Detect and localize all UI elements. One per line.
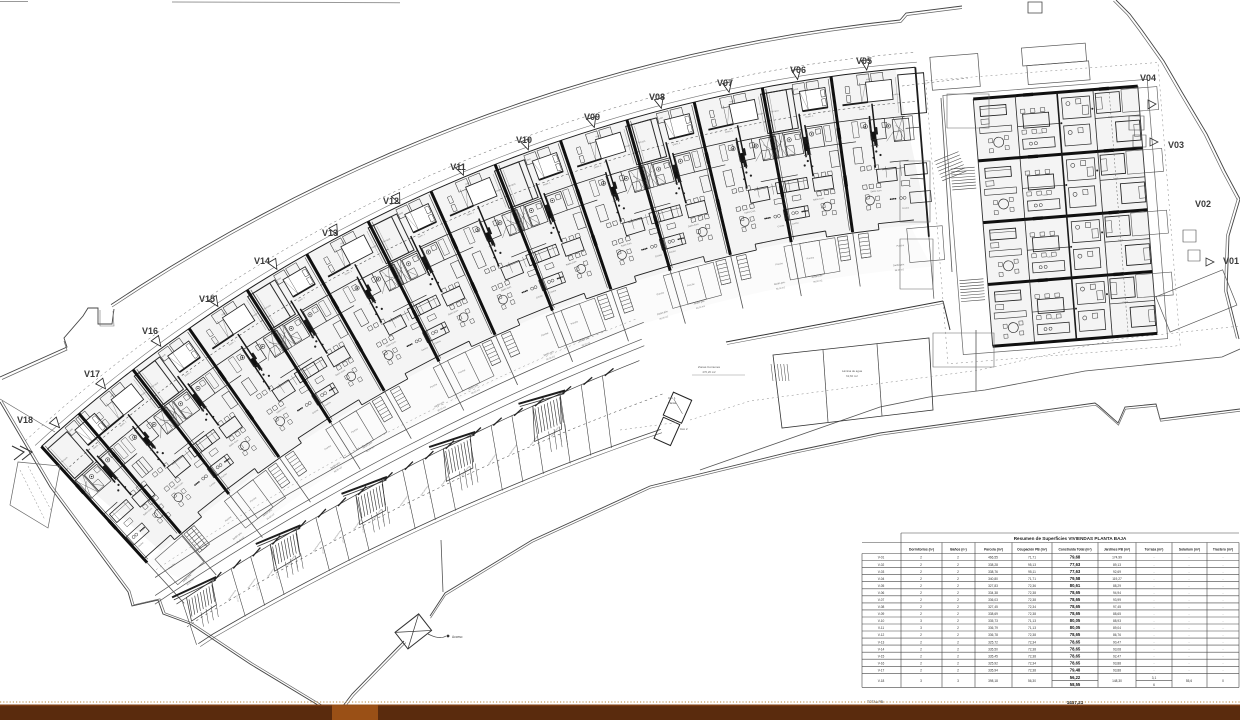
svg-text:Construida Total (m²): Construida Total (m²): [1058, 548, 1091, 552]
svg-text:V-14: V-14: [878, 647, 885, 651]
svg-text:-: -: [1153, 598, 1154, 602]
svg-text:-: -: [1222, 577, 1223, 581]
svg-text:97,45: 97,45: [1113, 605, 1121, 609]
svg-text:-: -: [1153, 647, 1154, 651]
svg-text:V15: V15: [199, 294, 215, 304]
svg-text:Dorm.: Dorm.: [1118, 239, 1125, 242]
svg-text:Lámina de agua: Lámina de agua: [842, 369, 863, 373]
svg-text:Planta: Planta: [668, 401, 676, 405]
svg-text:V07: V07: [717, 78, 733, 88]
svg-text:78,65: 78,65: [1070, 590, 1081, 595]
svg-text:72,38: 72,38: [1028, 591, 1036, 595]
svg-text:2: 2: [957, 654, 959, 658]
svg-text:327,45: 327,45: [988, 605, 998, 609]
svg-text:2: 2: [957, 556, 959, 560]
svg-text:V18: V18: [17, 415, 33, 425]
svg-text:3: 3: [920, 619, 922, 623]
svg-text:-: -: [1222, 563, 1223, 567]
svg-text:72,34: 72,34: [1028, 605, 1036, 609]
svg-text:V13: V13: [322, 228, 338, 238]
svg-text:-: -: [1153, 612, 1154, 616]
svg-text:2: 2: [920, 612, 922, 616]
svg-text:V-18: V-18: [878, 679, 885, 683]
svg-text:-: -: [1153, 570, 1154, 574]
svg-text:2: 2: [920, 654, 922, 658]
svg-text:79,58: 79,58: [1070, 576, 1081, 581]
svg-text:2: 2: [957, 570, 959, 574]
svg-text:V09: V09: [584, 112, 600, 122]
svg-text:78,65: 78,65: [1070, 611, 1081, 616]
svg-text:2: 2: [920, 556, 922, 560]
svg-text:Acceso: Acceso: [452, 635, 463, 639]
svg-text:72,38: 72,38: [1028, 612, 1036, 616]
svg-text:cont: cont: [866, 78, 871, 81]
svg-text:V-16: V-16: [878, 662, 885, 666]
svg-text:-: -: [1222, 640, 1223, 644]
svg-text:-: -: [1188, 626, 1189, 630]
svg-text:-: -: [1188, 654, 1189, 658]
svg-text:-: -: [1153, 669, 1154, 673]
svg-text:72,38: 72,38: [1028, 647, 1036, 651]
svg-text:-: -: [1222, 669, 1223, 673]
svg-text:-: -: [1188, 584, 1189, 588]
svg-text:55,6: 55,6: [1186, 679, 1192, 683]
svg-text:-: -: [1188, 577, 1189, 581]
svg-text:3: 3: [920, 626, 922, 630]
svg-text:72,38: 72,38: [1028, 669, 1036, 673]
svg-text:Resumen de Superficies VIVIEND: Resumen de Superficies VIVIENDAS PLANTA …: [1014, 536, 1127, 541]
svg-text:-: -: [1153, 662, 1154, 666]
svg-text:93,88: 93,88: [1113, 669, 1121, 673]
svg-text:71,13: 71,13: [1028, 626, 1036, 630]
svg-text:-: -: [1188, 669, 1189, 673]
svg-text:V-11: V-11: [878, 626, 885, 630]
svg-text:-: -: [1188, 598, 1189, 602]
svg-text:71,71: 71,71: [1028, 556, 1036, 560]
svg-text:77,63: 77,63: [1070, 562, 1081, 567]
svg-text:-: -: [1222, 626, 1223, 630]
svg-text:338,69: 338,69: [988, 612, 998, 616]
svg-text:-: -: [1153, 626, 1154, 630]
svg-text:80,61: 80,61: [1070, 583, 1081, 588]
svg-text:V-07: V-07: [878, 598, 885, 602]
svg-text:92,47: 92,47: [1113, 654, 1121, 658]
svg-text:Trastero (m²): Trastero (m²): [1213, 548, 1233, 552]
svg-text:V01: V01: [1223, 256, 1239, 266]
svg-text:TOTAL PB: TOTAL PB: [867, 700, 884, 704]
svg-text:-: -: [1153, 619, 1154, 623]
svg-text:78,65: 78,65: [1070, 661, 1081, 666]
svg-text:V-05: V-05: [878, 584, 885, 588]
svg-text:2: 2: [957, 626, 959, 630]
svg-text:-: -: [1222, 605, 1223, 609]
svg-text:-: -: [1153, 556, 1154, 560]
svg-text:Dorm.: Dorm.: [1123, 300, 1130, 303]
svg-text:89,04: 89,04: [1113, 626, 1121, 630]
svg-text:72,34: 72,34: [1028, 662, 1036, 666]
svg-text:Dorm.: Dorm.: [1108, 115, 1115, 118]
svg-text:327,83: 327,83: [988, 584, 998, 588]
svg-text:174,99: 174,99: [1112, 556, 1122, 560]
svg-text:2: 2: [957, 577, 959, 581]
svg-text:-: -: [1222, 633, 1223, 637]
svg-text:V16: V16: [142, 326, 158, 336]
svg-text:-: -: [1188, 556, 1189, 560]
svg-text:V-08: V-08: [878, 605, 885, 609]
svg-text:V-12: V-12: [878, 633, 885, 637]
svg-text:338,76: 338,76: [988, 570, 998, 574]
svg-text:Parcela (m²): Parcela (m²): [984, 548, 1003, 552]
svg-text:6: 6: [1153, 683, 1155, 687]
svg-text:79,48: 79,48: [1070, 668, 1081, 673]
svg-text:-: -: [1188, 563, 1189, 567]
svg-text:-: -: [1153, 633, 1154, 637]
svg-text:340,80: 340,80: [988, 577, 998, 581]
svg-text:325,72: 325,72: [988, 640, 998, 644]
svg-text:2: 2: [957, 612, 959, 616]
svg-text:72,38: 72,38: [1028, 654, 1036, 658]
svg-text:0: 0: [1222, 679, 1224, 683]
svg-text:-: -: [1153, 577, 1154, 581]
svg-text:71,71: 71,71: [1028, 577, 1036, 581]
svg-text:Inst. 1: Inst. 1: [668, 396, 676, 400]
svg-text:V12: V12: [383, 196, 399, 206]
svg-text:90,47: 90,47: [1113, 640, 1121, 644]
svg-text:72,34: 72,34: [1028, 640, 1036, 644]
svg-text:338,28: 338,28: [988, 563, 998, 567]
svg-text:V14: V14: [254, 256, 270, 266]
svg-text:-: -: [1222, 662, 1223, 666]
svg-text:2: 2: [920, 605, 922, 609]
svg-text:V11: V11: [450, 162, 466, 172]
svg-text:-: -: [1188, 612, 1189, 616]
svg-text:86,76: 86,76: [1113, 633, 1121, 637]
svg-text:94,94: 94,94: [1113, 591, 1121, 595]
svg-text:93,88: 93,88: [1113, 662, 1121, 666]
svg-text:335,73: 335,73: [988, 619, 998, 623]
svg-text:325,92: 325,92: [988, 662, 998, 666]
svg-text:77,63: 77,63: [1070, 569, 1081, 574]
svg-text:80,05: 80,05: [1070, 625, 1081, 630]
svg-text:-: -: [1188, 633, 1189, 637]
svg-text:V06: V06: [790, 65, 806, 75]
svg-text:-: -: [1153, 563, 1154, 567]
svg-text:-: -: [1222, 598, 1223, 602]
svg-text:78,65: 78,65: [1070, 632, 1081, 637]
svg-text:2: 2: [957, 605, 959, 609]
svg-text:2: 2: [957, 563, 959, 567]
svg-text:2: 2: [957, 640, 959, 644]
svg-text:Zonas Comunes: Zonas Comunes: [698, 365, 721, 369]
svg-text:2: 2: [957, 584, 959, 588]
svg-text:72,38: 72,38: [1028, 598, 1036, 602]
svg-text:2: 2: [957, 669, 959, 673]
svg-text:56,22: 56,22: [1070, 675, 1081, 680]
svg-text:Inst. 2: Inst. 2: [680, 427, 688, 431]
svg-text:335,50: 335,50: [988, 647, 998, 651]
svg-text:71,13: 71,13: [1028, 619, 1036, 623]
svg-text:2: 2: [920, 669, 922, 673]
svg-text:119,27: 119,27: [1112, 577, 1122, 581]
svg-text:-: -: [1153, 591, 1154, 595]
svg-text:2: 2: [957, 598, 959, 602]
svg-text:-: -: [1222, 612, 1223, 616]
svg-text:Dormitorios (nº): Dormitorios (nº): [909, 548, 934, 552]
svg-text:2: 2: [920, 563, 922, 567]
svg-text:-: -: [1153, 640, 1154, 644]
svg-text:V02: V02: [1195, 199, 1211, 209]
svg-text:-: -: [1188, 662, 1189, 666]
svg-text:334,38: 334,38: [988, 591, 998, 595]
svg-text:-: -: [1153, 605, 1154, 609]
svg-text:V-02: V-02: [878, 563, 885, 567]
svg-text:78,65: 78,65: [1070, 597, 1081, 602]
svg-text:2: 2: [920, 640, 922, 644]
svg-text:2: 2: [920, 662, 922, 666]
svg-text:2: 2: [957, 633, 959, 637]
svg-text:2: 2: [920, 598, 922, 602]
svg-text:88,29: 88,29: [1113, 584, 1121, 588]
svg-text:-: -: [1188, 640, 1189, 644]
svg-text:Dorm.: Dorm.: [1113, 177, 1120, 180]
svg-text:56,30: 56,30: [1028, 679, 1036, 683]
svg-text:V05: V05: [856, 56, 872, 66]
svg-text:336,78: 336,78: [988, 633, 998, 637]
svg-text:80,05: 80,05: [1070, 618, 1081, 623]
svg-text:58,55: 58,55: [1070, 682, 1081, 687]
svg-text:-: -: [1222, 647, 1223, 651]
svg-text:72,38: 72,38: [1028, 633, 1036, 637]
svg-text:Solarium (m²): Solarium (m²): [1179, 548, 1200, 552]
svg-text:2: 2: [957, 662, 959, 666]
svg-text:V-06: V-06: [878, 591, 885, 595]
svg-text:95,11: 95,11: [1028, 570, 1036, 574]
svg-text:V03: V03: [1168, 140, 1184, 150]
svg-text:V-09: V-09: [878, 612, 885, 616]
svg-text:3,1: 3,1: [1152, 676, 1157, 680]
svg-text:Jardines PB (m²): Jardines PB (m²): [1104, 548, 1130, 552]
svg-text:Baños (nº): Baños (nº): [950, 548, 966, 552]
svg-text:-: -: [1222, 591, 1223, 595]
svg-text:89,13: 89,13: [1113, 563, 1121, 567]
svg-text:3: 3: [920, 679, 922, 683]
svg-text:2: 2: [957, 619, 959, 623]
svg-text:93,08: 93,08: [1113, 647, 1121, 651]
svg-text:3: 3: [957, 679, 959, 683]
svg-text:-: -: [1188, 570, 1189, 574]
svg-text:-: -: [1188, 591, 1189, 595]
svg-text:88,93: 88,93: [1113, 619, 1121, 623]
svg-text:2: 2: [957, 647, 959, 651]
svg-text:Ocupación PB (m²): Ocupación PB (m²): [1017, 548, 1047, 552]
svg-text:466,55: 466,55: [988, 556, 998, 560]
svg-text:V-03: V-03: [878, 570, 885, 574]
svg-text:2: 2: [920, 591, 922, 595]
svg-text:-: -: [1222, 654, 1223, 658]
svg-text:-: -: [1188, 605, 1189, 609]
svg-text:78,65: 78,65: [1070, 653, 1081, 658]
svg-text:2: 2: [957, 591, 959, 595]
svg-text:72,36: 72,36: [1028, 584, 1036, 588]
svg-text:2: 2: [920, 577, 922, 581]
svg-text:Terraza (m²): Terraza (m²): [1145, 548, 1164, 552]
svg-text:88,65: 88,65: [1113, 612, 1121, 616]
svg-text:V08: V08: [649, 92, 665, 102]
svg-text:78,65: 78,65: [1070, 639, 1081, 644]
svg-text:79,68: 79,68: [1070, 555, 1081, 560]
svg-text:V-04: V-04: [878, 577, 885, 581]
svg-text:95,13: 95,13: [1028, 563, 1036, 567]
svg-text:62,60 m2: 62,60 m2: [846, 374, 858, 378]
svg-text:V-15: V-15: [878, 654, 885, 658]
svg-text:V-13: V-13: [878, 640, 885, 644]
svg-text:V-10: V-10: [878, 619, 885, 623]
svg-text:336,79: 336,79: [988, 626, 998, 630]
svg-text:-: -: [1153, 584, 1154, 588]
svg-text:92,69: 92,69: [1113, 570, 1121, 574]
svg-text:-: -: [1222, 584, 1223, 588]
svg-text:398,18: 398,18: [988, 679, 998, 683]
svg-text:-: -: [1222, 556, 1223, 560]
svg-text:93,99: 93,99: [1113, 598, 1121, 602]
svg-text:78,65: 78,65: [1070, 604, 1081, 609]
svg-text:V-17: V-17: [878, 669, 885, 673]
svg-text:148,30: 148,30: [1112, 679, 1122, 683]
svg-text:-: -: [1222, 570, 1223, 574]
svg-text:2: 2: [920, 647, 922, 651]
svg-text:2: 2: [920, 584, 922, 588]
svg-text:335,94: 335,94: [988, 669, 998, 673]
svg-text:2: 2: [920, 570, 922, 574]
svg-text:V10: V10: [516, 135, 532, 145]
svg-text:-: -: [1188, 647, 1189, 651]
svg-text:335,45: 335,45: [988, 654, 998, 658]
svg-text:78,65: 78,65: [1070, 646, 1081, 651]
svg-text:V-01: V-01: [878, 556, 885, 560]
svg-text:V17: V17: [84, 369, 100, 379]
svg-text:2: 2: [920, 633, 922, 637]
svg-text:-: -: [1188, 619, 1189, 623]
svg-text:-: -: [1222, 619, 1223, 623]
svg-text:-: -: [1153, 654, 1154, 658]
svg-text:470,26 m2: 470,26 m2: [702, 370, 716, 374]
svg-text:336,03: 336,03: [988, 598, 998, 602]
svg-text:V04: V04: [1140, 73, 1156, 83]
